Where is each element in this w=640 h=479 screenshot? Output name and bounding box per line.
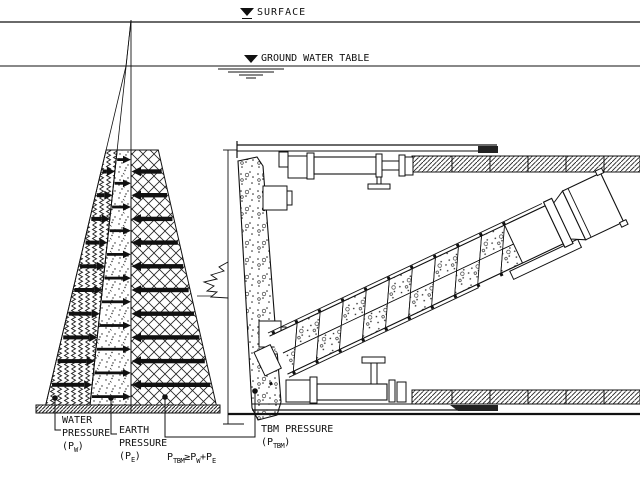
diagram-canvas (0, 0, 640, 479)
lining-top (412, 156, 640, 172)
pressure-formula: PTBM≥PW+PE (167, 451, 216, 465)
earth-pressure-line2: PRESSURE (119, 437, 167, 450)
lining-bottom (412, 390, 640, 404)
base-strip (36, 405, 220, 413)
water-pressure-line1: WATER (62, 414, 110, 427)
earth-pressure-label: EARTH PRESSURE (PE) (119, 424, 167, 464)
pressure-diagram (36, 20, 220, 413)
water-pressure-symbol: (PW) (62, 440, 110, 454)
screw-flights (252, 214, 545, 382)
tbm-pressure-line1: TBM PRESSURE (261, 423, 333, 436)
earth-pressure-line1: EARTH (119, 424, 167, 437)
water-pressure-label: WATER PRESSURE (PW) (62, 414, 110, 454)
ground-lines (0, 8, 640, 78)
drawing-sheet: SURFACE GROUND WATER TABLE WATER PRESSUR… (0, 0, 640, 479)
tbm-pressure-region (131, 150, 216, 405)
earth-pressure-symbol: (PE) (119, 450, 167, 464)
face-squiggle-icon (204, 262, 228, 298)
thrust-jack-top (288, 153, 413, 189)
surface-label: SURFACE (257, 6, 306, 19)
tbm-pressure-label: TBM PRESSURE (PTBM) (261, 423, 333, 450)
screw-conveyor (246, 168, 628, 393)
tbm-pressure-symbol: (PTBM) (261, 436, 333, 450)
tbm-machine (197, 141, 640, 424)
ground-water-table-label: GROUND WATER TABLE (261, 52, 369, 65)
water-pressure-line2: PRESSURE (62, 427, 110, 440)
surface-datum-icon (240, 8, 254, 19)
